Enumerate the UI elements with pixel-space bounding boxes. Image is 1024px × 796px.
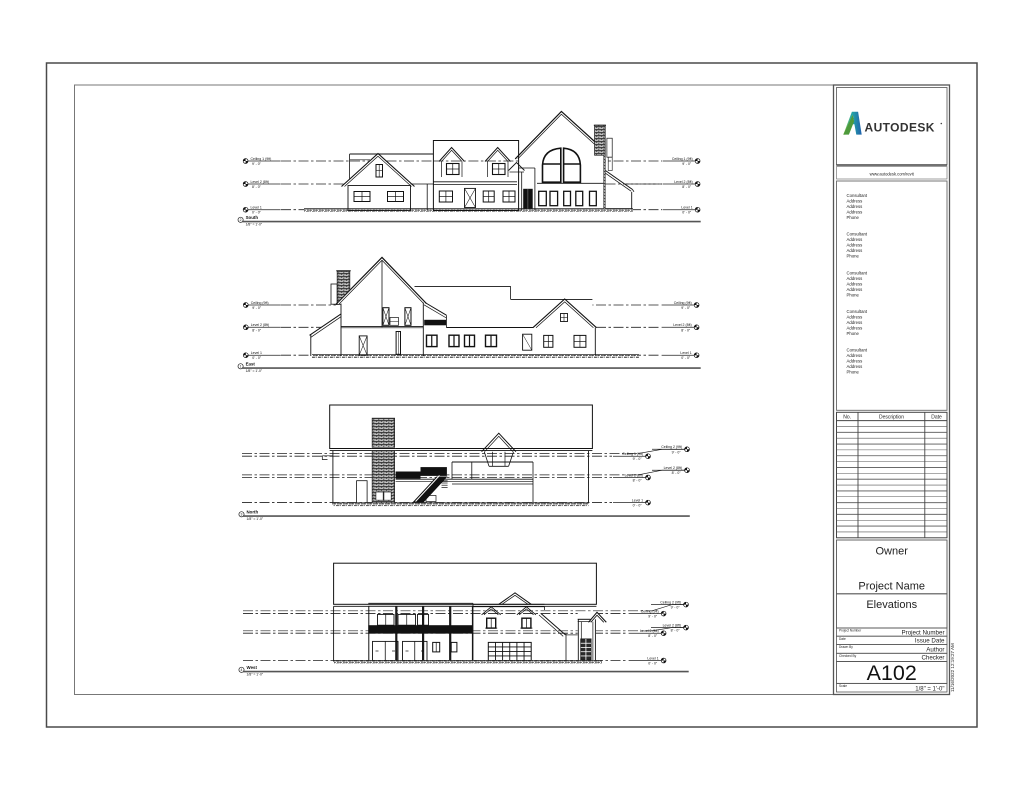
svg-text:AUTODESK: AUTODESK [865,120,935,134]
svg-text:8' - 0": 8' - 0" [671,629,681,633]
svg-text:Phone: Phone [847,331,860,336]
svg-text:Drawn By: Drawn By [839,645,853,649]
svg-text:No.: No. [843,414,851,420]
svg-text:Ceiling (9ft): Ceiling (9ft) [674,301,692,305]
svg-text:8' - 0": 8' - 0" [682,185,692,189]
svg-text:Ceiling (9ft): Ceiling (9ft) [251,301,269,305]
svg-text:0' - 0": 0' - 0" [633,504,643,508]
svg-text:9' - 0": 9' - 0" [682,162,692,166]
svg-text:Checker: Checker [921,655,944,662]
svg-text:Project Number: Project Number [839,629,862,633]
svg-text:1/8" = 1'-0": 1/8" = 1'-0" [915,686,944,692]
svg-text:Level 2 (8ft): Level 2 (8ft) [625,473,643,477]
svg-text:Elevations: Elevations [866,599,917,611]
svg-text:9' - 0": 9' - 0" [252,162,262,166]
svg-text:8' - 0": 8' - 0" [681,328,691,332]
svg-text:Project Name: Project Name [858,580,925,592]
svg-text:North: North [247,509,259,514]
svg-text:West: West [247,665,258,670]
svg-text:Ceiling 1 (9ft): Ceiling 1 (9ft) [672,157,693,161]
svg-text:Address: Address [847,243,863,248]
svg-text:8' - 0": 8' - 0" [672,471,682,475]
svg-text:Ceiling 1 (9ft): Ceiling 1 (9ft) [622,452,643,456]
svg-text:Address: Address [847,359,863,364]
svg-text:8' - 0": 8' - 0" [252,328,262,332]
svg-text:1/8" = 1'-0": 1/8" = 1'-0" [246,223,263,227]
svg-text:Date: Date [931,414,942,420]
svg-text:Level 2 (8ft): Level 2 (8ft) [251,323,269,327]
svg-text:Ceiling 2 (9ft): Ceiling 2 (9ft) [661,445,682,449]
svg-text:1/8" = 1'-0": 1/8" = 1'-0" [246,369,263,373]
svg-text:A102: A102 [867,661,917,685]
svg-text:Level 1: Level 1 [251,206,262,210]
svg-text:East: East [246,361,256,366]
svg-text:Address: Address [847,326,863,331]
svg-text:Address: Address [847,320,863,325]
svg-text:Author: Author [926,647,944,654]
svg-text:Level 1: Level 1 [681,206,692,210]
svg-text:Level 1: Level 1 [632,498,643,502]
svg-text:Checked By: Checked By [839,654,857,658]
svg-text:4: 4 [241,668,243,672]
svg-text:9' - 0": 9' - 0" [633,457,643,461]
svg-text:Phone: Phone [847,254,860,259]
svg-text:Level 2 (8ft): Level 2 (8ft) [674,180,692,184]
svg-text:Phone: Phone [847,293,860,298]
svg-text:8' - 0": 8' - 0" [633,479,643,483]
svg-text:11/16/2022 12:19:27 AM: 11/16/2022 12:19:27 AM [950,643,955,692]
svg-text:Address: Address [847,353,863,358]
svg-text:1/8" = 1'-0": 1/8" = 1'-0" [247,517,264,521]
svg-text:Phone: Phone [847,370,860,375]
svg-text:Project Number: Project Number [902,629,945,636]
svg-text:0' - 0": 0' - 0" [682,211,692,215]
svg-text:Owner: Owner [875,546,908,558]
svg-text:Address: Address [847,364,863,369]
svg-text:2: 2 [240,218,242,222]
svg-text:Level 2 (8ft): Level 2 (8ft) [664,466,682,470]
svg-text:Consultant: Consultant [847,232,868,237]
svg-text:Scale: Scale [839,684,847,688]
svg-text:3: 3 [241,513,243,517]
svg-text:Address: Address [847,276,863,281]
svg-text:9' - 0": 9' - 0" [252,306,262,310]
svg-text:Ceiling 1 (9ft): Ceiling 1 (9ft) [251,157,272,161]
svg-text:9' - 0": 9' - 0" [671,606,681,610]
svg-text:0' - 0": 0' - 0" [648,662,658,666]
svg-text:www.autodesk.com/revit: www.autodesk.com/revit [870,171,915,176]
svg-text:Level 1: Level 1 [647,656,658,660]
svg-text:Consultant: Consultant [847,348,868,353]
svg-text:Level 1: Level 1 [680,351,691,355]
svg-text:Address: Address [847,204,863,209]
svg-text:8' - 0": 8' - 0" [648,634,658,638]
svg-text:Level 2 (8ft): Level 2 (8ft) [640,629,658,633]
svg-text:Date: Date [839,637,846,641]
svg-text:Level 2 (8ft): Level 2 (8ft) [663,623,681,627]
svg-text:Level 2 (8ft): Level 2 (8ft) [673,323,691,327]
svg-text:Level 2 (8ft): Level 2 (8ft) [251,180,269,184]
svg-text:Address: Address [847,199,863,204]
svg-text:Address: Address [847,282,863,287]
svg-text:Issue Date: Issue Date [915,638,945,645]
svg-text:Level 1: Level 1 [251,351,262,355]
svg-text:Address: Address [847,248,863,253]
svg-text:Ceiling (9ft): Ceiling (9ft) [641,609,659,613]
svg-text:Description: Description [879,414,904,420]
svg-text:8' - 0": 8' - 0" [252,185,262,189]
svg-text:Address: Address [847,210,863,215]
svg-text:9' - 0": 9' - 0" [681,306,691,310]
svg-text:9' - 0": 9' - 0" [672,450,682,454]
svg-text:1: 1 [240,365,242,369]
svg-text:Address: Address [847,287,863,292]
svg-text:Ceiling 2 (9ft): Ceiling 2 (9ft) [660,600,681,604]
svg-text:1/8" = 1'-0": 1/8" = 1'-0" [247,673,264,677]
svg-text:South: South [246,215,259,220]
svg-text:Phone: Phone [847,215,860,220]
svg-text:Address: Address [847,315,863,320]
svg-text:Consultant: Consultant [847,193,868,198]
svg-text:Consultant: Consultant [847,271,868,276]
svg-text:Consultant: Consultant [847,309,868,314]
svg-text:0' - 0": 0' - 0" [681,356,691,360]
svg-text:0' - 0": 0' - 0" [252,356,262,360]
svg-text:9' - 0": 9' - 0" [648,615,658,619]
svg-text:Address: Address [847,237,863,242]
